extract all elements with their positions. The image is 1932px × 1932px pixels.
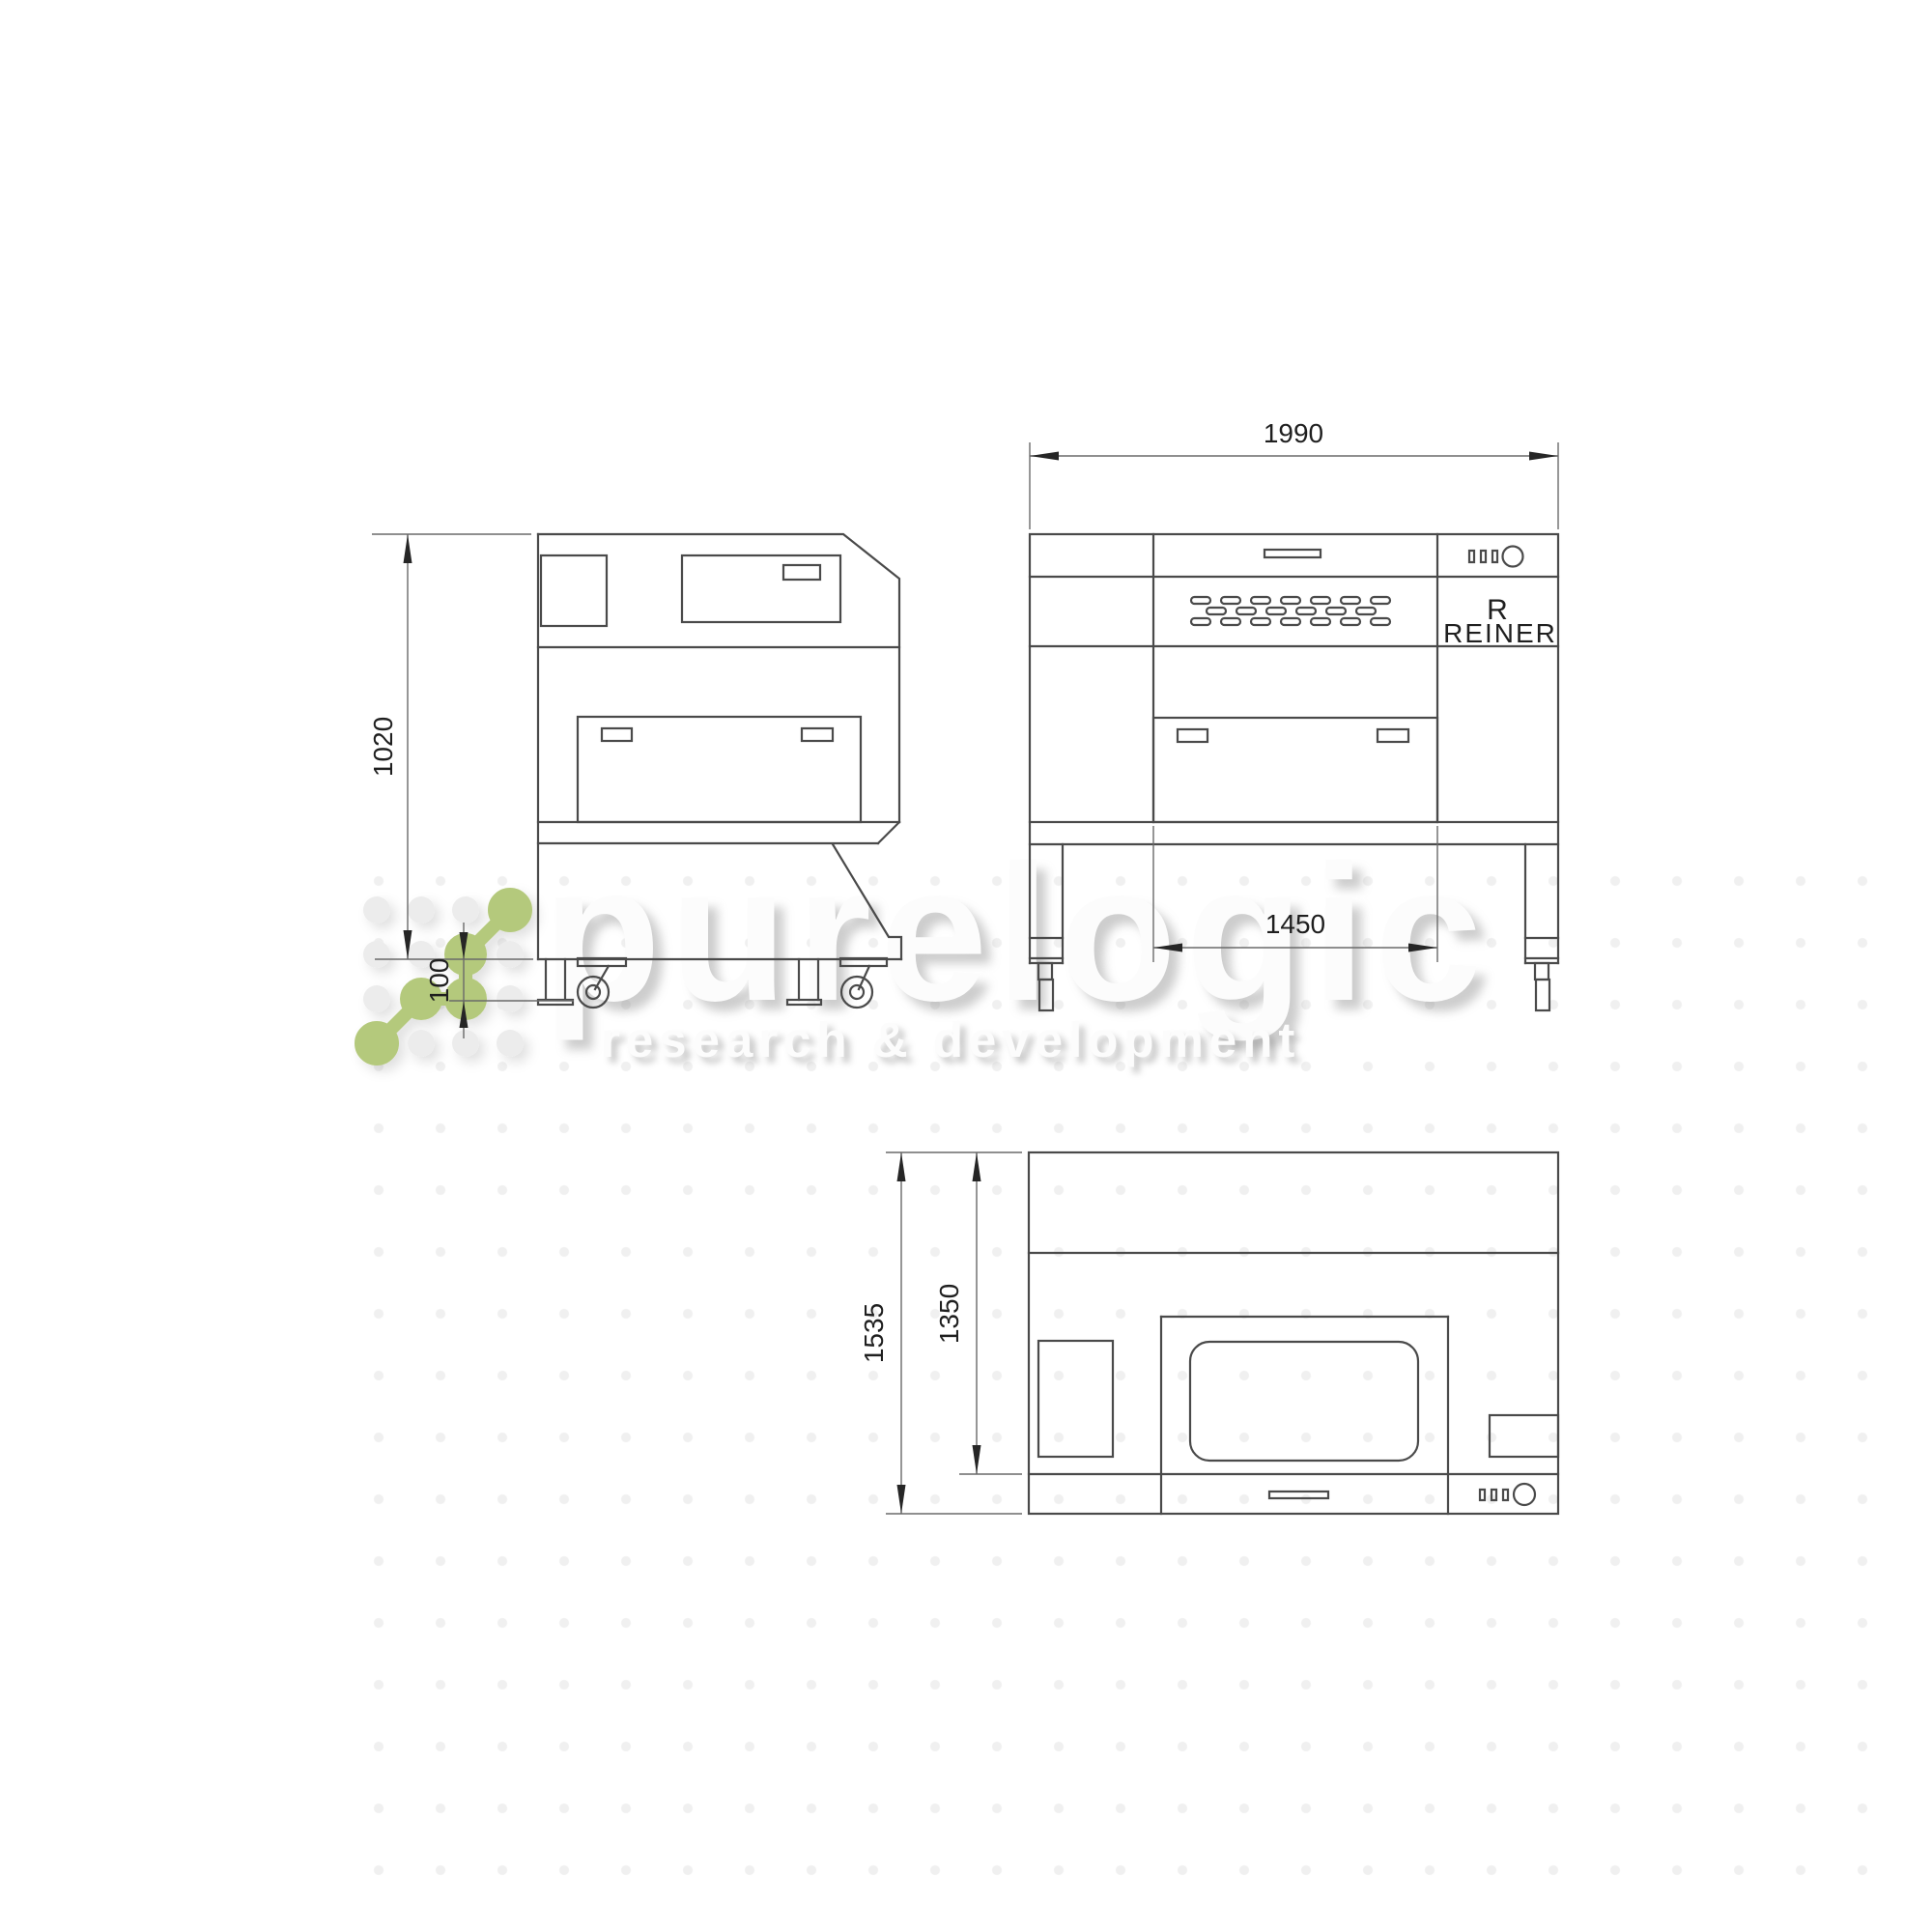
dim-label-1535: 1535 — [859, 1303, 889, 1363]
side-view-panels — [541, 555, 861, 822]
ventilation-grille — [1191, 597, 1390, 625]
dimension-front-width: 1990 — [1030, 418, 1558, 529]
dimension-door-width: 1450 — [1153, 826, 1437, 962]
front-top-handle — [1264, 550, 1321, 557]
top-handle — [1269, 1492, 1328, 1498]
dimension-depth-body: 1350 — [934, 1152, 1022, 1474]
side-view-casters — [578, 958, 887, 1008]
front-control-panel — [1469, 547, 1523, 567]
indicator-light — [1492, 1490, 1496, 1500]
front-door-handle-right — [1378, 729, 1408, 742]
front-view-legs — [1030, 844, 1558, 963]
side-view-outline — [538, 534, 901, 959]
front-door-handle-left — [1178, 729, 1207, 742]
dim-label-1450: 1450 — [1265, 909, 1325, 939]
top-view — [1029, 1152, 1558, 1514]
indicator-light — [1469, 551, 1474, 562]
dim-label-1350: 1350 — [934, 1284, 964, 1344]
viewing-window — [1190, 1342, 1418, 1461]
side-door-handle-left — [602, 728, 632, 741]
power-button — [1503, 547, 1523, 567]
indicator-light — [1480, 1490, 1485, 1500]
dimension-ground-clearance: 100 — [424, 923, 574, 1038]
dim-label-100: 100 — [424, 958, 454, 1004]
reiner-logo-name: REINER — [1443, 618, 1557, 648]
reiner-logo: R REINER — [1443, 594, 1557, 648]
front-door — [1153, 718, 1437, 822]
front-view-casters — [1038, 963, 1549, 1010]
technical-drawing: R REINER — [0, 0, 1932, 1932]
top-view-details — [1038, 1341, 1558, 1505]
drawing-sheet: purelogic research & development — [0, 0, 1932, 1932]
dim-label-1990: 1990 — [1264, 418, 1323, 448]
side-door-handle-right — [802, 728, 833, 741]
top-left-panel — [1038, 1341, 1113, 1457]
indicator-light — [1481, 551, 1486, 562]
side-view — [538, 534, 901, 1008]
dim-label-1020: 1020 — [368, 717, 398, 777]
front-view: R REINER — [1030, 534, 1558, 1010]
indicator-light — [1492, 551, 1497, 562]
front-view-outline — [1030, 534, 1558, 963]
side-door — [578, 717, 861, 822]
power-button — [1514, 1484, 1535, 1505]
front-view-panels — [1153, 550, 1437, 822]
top-right-panel — [1490, 1415, 1558, 1457]
indicator-light — [1503, 1490, 1508, 1500]
dimension-side-height: 1020 — [368, 534, 533, 959]
